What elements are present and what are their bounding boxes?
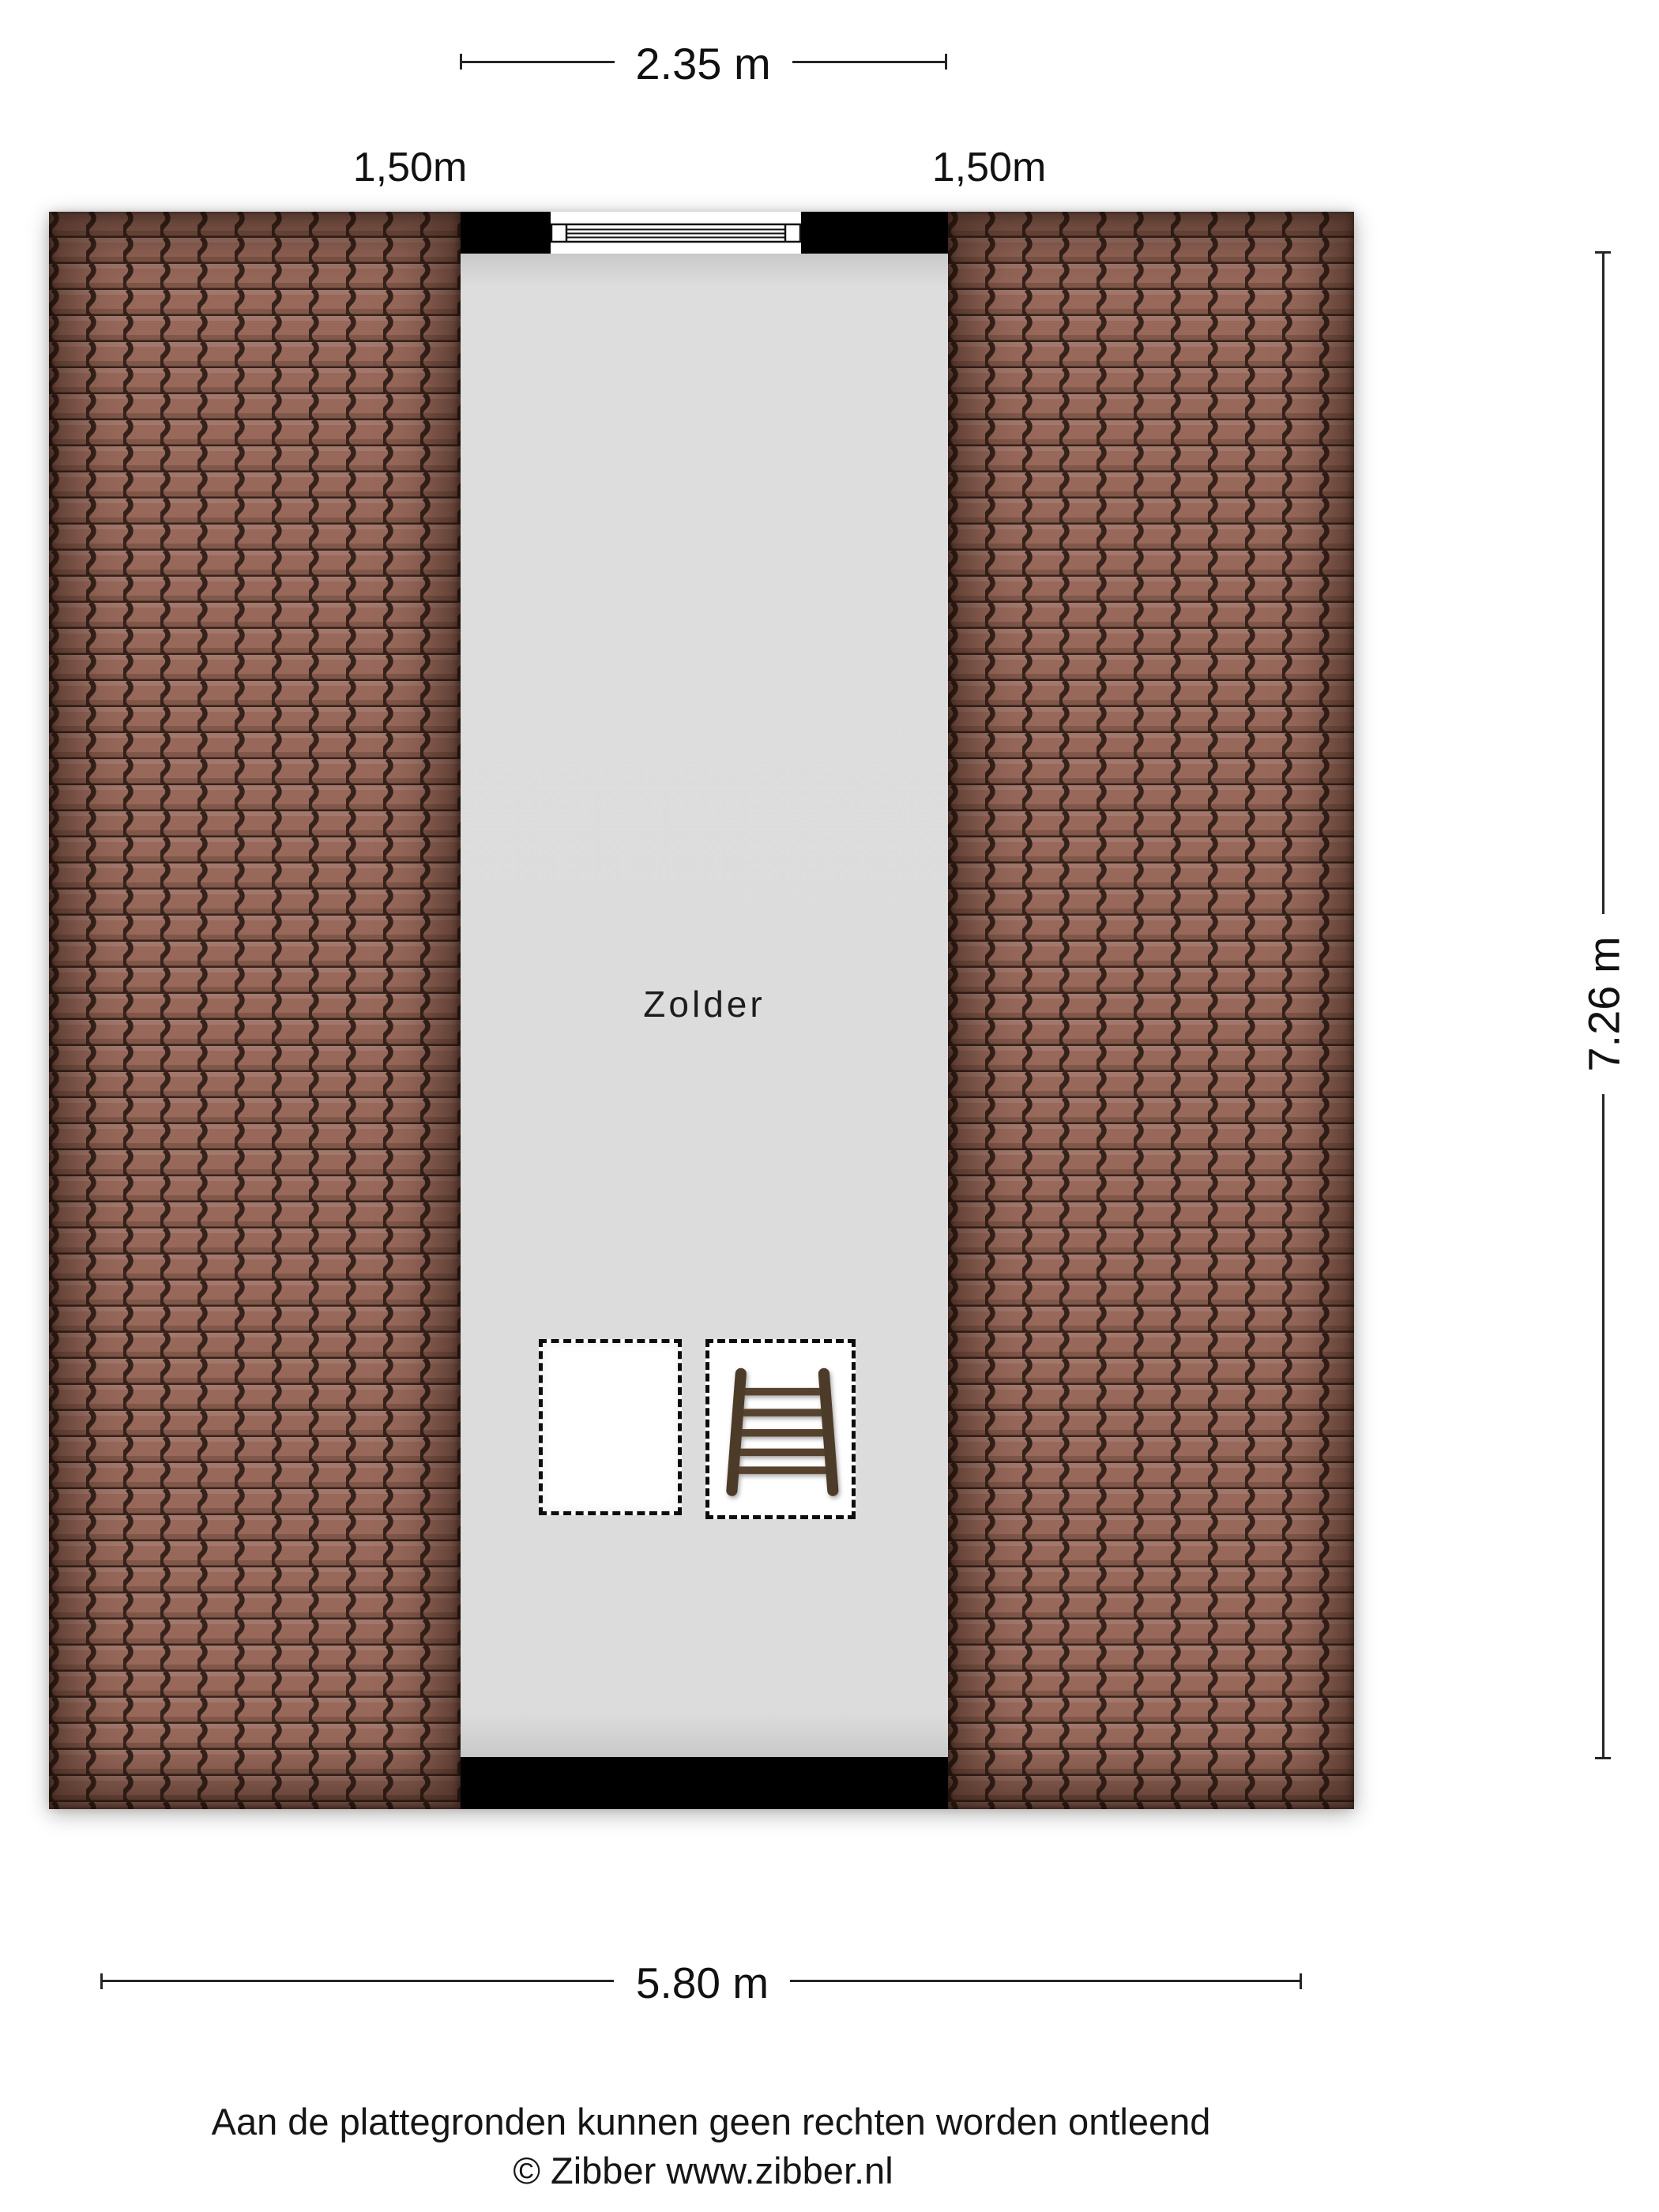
hatch-opening-box	[539, 1339, 682, 1515]
footer-copyright: © Zibber www.zibber.nl	[0, 2149, 1406, 2192]
wall-top-left	[461, 212, 551, 254]
window-icon	[551, 212, 801, 254]
right-dim-line-top	[1602, 253, 1604, 914]
right-dim-label: 7.26 m	[1578, 936, 1630, 1071]
left-slope-label: 1,50m	[331, 144, 489, 191]
roof-left-edge-shadow	[49, 212, 461, 1809]
room-label: Zolder	[461, 983, 948, 1025]
roof-tiles-right	[948, 212, 1354, 1809]
top-dim-line-left	[461, 61, 615, 63]
top-dim-label: 2.35 m	[619, 38, 788, 89]
bottom-dim-label: 5.80 m	[618, 1958, 787, 2008]
top-dim-tick-right	[945, 54, 947, 70]
top-dim-line-right	[792, 61, 946, 63]
footer-disclaimer: Aan de plattegronden kunnen geen rechten…	[0, 2100, 1422, 2143]
ladder-icon	[709, 1343, 852, 1515]
wall-top-right	[801, 212, 948, 254]
roof-tiles-left	[49, 212, 461, 1809]
bottom-dim-line-left	[101, 1980, 614, 1982]
right-dim-line-bottom	[1602, 1094, 1604, 1759]
roof-right-edge-shadow	[948, 212, 1354, 1809]
right-slope-label: 1,50m	[910, 144, 1068, 191]
floorplan-page: 2.35 m 1,50m 1,50m	[0, 0, 1659, 2212]
attic-floorplan: Zolder	[49, 212, 1354, 1809]
bottom-dim-tick-right	[1300, 1973, 1302, 1989]
wall-bottom	[461, 1757, 948, 1809]
right-dim-tick-bottom	[1595, 1757, 1611, 1759]
ladder-opening-box	[705, 1339, 856, 1519]
bottom-dim-line-right	[790, 1980, 1301, 1982]
